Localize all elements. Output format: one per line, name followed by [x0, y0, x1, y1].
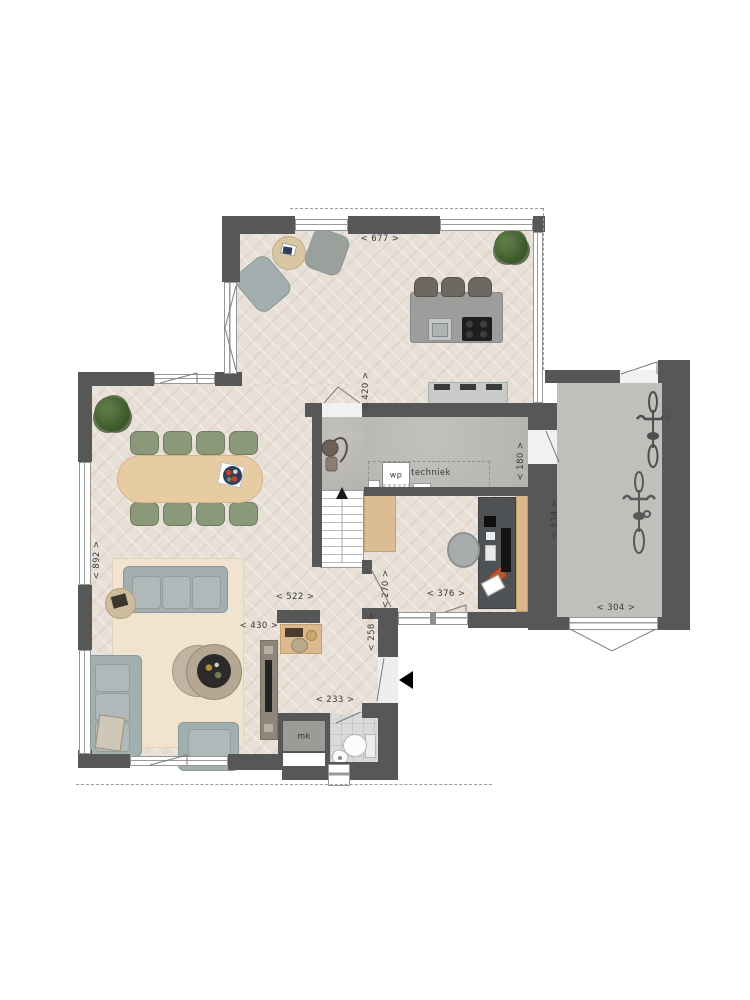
- window-dining-north: [154, 374, 215, 384]
- flower-bouquet: [223, 466, 242, 485]
- wc-sink-tap: [338, 756, 342, 760]
- hall-wood-cabinet: [364, 495, 396, 552]
- dashed-roofline-top: [290, 208, 543, 209]
- dim-kitchen-depth: < 420 >: [361, 372, 371, 411]
- kitchen-sink-basin: [432, 323, 448, 337]
- door-techniek-garage: [528, 430, 557, 464]
- counter-appliance: [460, 384, 476, 390]
- wall-west-pier-2: [78, 585, 92, 650]
- window-wc: [328, 764, 350, 786]
- garage-floor: [557, 383, 662, 617]
- wall-kitchen-south-a: [305, 403, 322, 417]
- magazines-dark: [283, 246, 293, 254]
- dim-passage-width: < 180 >: [516, 442, 526, 481]
- wall-west-pier-1: [78, 372, 92, 462]
- dim-hall-length: < 233 >: [316, 695, 355, 705]
- window-south-living: [130, 756, 228, 766]
- wall-unit-shelf: [263, 723, 274, 733]
- dim-garage-depth: < 534 >: [550, 500, 560, 539]
- dim-hall-depth: < 270 >: [381, 570, 391, 609]
- plant-dining: [94, 396, 130, 432]
- desk-keyboard: [485, 545, 496, 561]
- wall-garage-east: [662, 360, 690, 630]
- wall-unit-shelf: [263, 645, 274, 655]
- counter-appliance: [434, 384, 450, 390]
- wall-south-1: [78, 754, 130, 768]
- garage-double-door: [569, 617, 658, 630]
- sofa-blanket: [95, 714, 125, 751]
- desk-notepad: [486, 532, 495, 540]
- dining-chair: [163, 502, 192, 526]
- study-wood-panel: [516, 494, 528, 612]
- dining-chair: [196, 502, 225, 526]
- dim-hall-side: < 258 >: [367, 613, 377, 652]
- wall-upperleft-pier: [222, 216, 240, 282]
- window-kitchen-east-glass: [533, 232, 543, 403]
- dining-chair: [229, 502, 258, 526]
- counter-appliance: [486, 384, 502, 390]
- console-tray: [285, 628, 303, 637]
- console-stool: [291, 638, 308, 653]
- floor-plan: < 677 > < 420 > < 892 > < 522 > < 430 > …: [0, 0, 750, 1000]
- entrance-arrow-icon: [399, 671, 413, 689]
- staircase: [320, 490, 364, 568]
- sofa-north: [123, 566, 228, 613]
- wall-garage-south-1: [545, 617, 569, 630]
- wall-top-2: [348, 216, 440, 234]
- dining-chair: [229, 431, 258, 455]
- dining-chair: [130, 431, 159, 455]
- dining-chair: [196, 431, 225, 455]
- closet-floor: [318, 413, 364, 493]
- fixture-label-mk: mk: [297, 732, 310, 741]
- dim-living-inner-width: < 430 >: [240, 621, 279, 631]
- window-top-left: [295, 219, 348, 231]
- coffee-table-top: [197, 654, 231, 688]
- wall-hall-post: [362, 560, 372, 574]
- fireplace-slot: [265, 660, 272, 712]
- dim-top-width: < 677 >: [361, 234, 400, 244]
- wall-garage-north: [545, 370, 620, 383]
- dim-study-width: < 376 >: [427, 589, 466, 599]
- bar-stool: [441, 277, 465, 297]
- fixture-label-wp: wp: [390, 471, 402, 480]
- wall-south-2: [228, 754, 282, 770]
- wall-study-south: [468, 612, 545, 628]
- mk-closet-niche: [283, 753, 325, 766]
- wall-dining-north-2: [215, 372, 242, 386]
- window-upperleft-glass: [224, 282, 237, 374]
- wall-techniek-south: [364, 487, 528, 496]
- wall-entry-south: [378, 703, 398, 765]
- window-top-right: [440, 219, 533, 231]
- wall-entry-north: [378, 608, 398, 657]
- desk-chair: [447, 532, 480, 568]
- door-garage-north: [620, 370, 658, 383]
- console-bowl: [306, 630, 317, 641]
- bar-stool: [468, 277, 492, 297]
- wall-kitchen-south-b: [362, 403, 545, 417]
- bar-stool: [414, 277, 438, 297]
- window-west-1: [79, 462, 91, 585]
- sofa-west: [85, 655, 142, 757]
- wall-hall-stub-west: [277, 610, 320, 623]
- dim-living-width: < 522 >: [276, 592, 315, 602]
- dining-chair: [163, 431, 192, 455]
- dashed-roofline-bottom: [76, 784, 492, 785]
- dining-chair: [130, 502, 159, 526]
- dim-left-height: < 892 >: [92, 541, 102, 580]
- door-kitchen-closet: [322, 403, 362, 417]
- window-west-2: [79, 650, 91, 754]
- dim-garage-width: < 304 >: [597, 603, 636, 613]
- desk-black-box: [484, 516, 496, 527]
- dashed-roofline-east: [543, 208, 544, 370]
- cooktop: [462, 317, 492, 341]
- window-study-post: [430, 612, 436, 625]
- wall-stairs-west: [312, 403, 322, 567]
- room-label-techniek: techniek: [411, 468, 451, 478]
- front-door-threshold: [378, 657, 398, 705]
- plant-kitchen: [494, 230, 528, 264]
- wall-wc-north: [362, 703, 378, 718]
- desk-monitor: [501, 528, 511, 572]
- wall-garage-south-2: [658, 617, 690, 630]
